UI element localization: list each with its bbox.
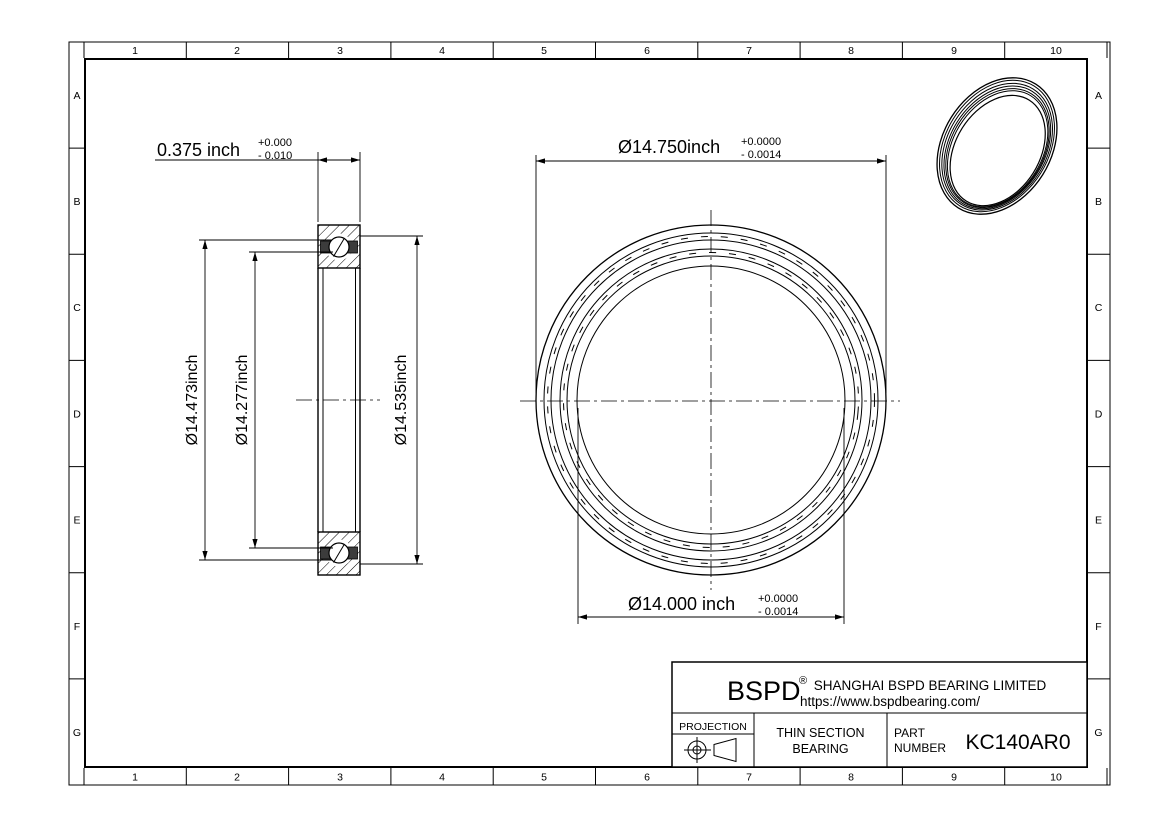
- row-label: F: [74, 621, 80, 633]
- product-name-line1: THIN SECTION: [776, 726, 864, 740]
- row-label: C: [73, 302, 81, 314]
- arrowhead-top: [202, 240, 207, 249]
- dim-value: Ø14.535inch: [393, 355, 410, 446]
- row-label: B: [73, 196, 80, 208]
- dim-tol-plus: +0.0000: [741, 136, 781, 148]
- company-name: SHANGHAI BSPD BEARING LIMITED: [814, 678, 1047, 693]
- row-label: F: [1095, 621, 1101, 633]
- col-label: 1: [132, 45, 138, 57]
- row-labels-left: A B C D E F G: [73, 90, 81, 739]
- row-label: E: [1095, 515, 1102, 527]
- front-view: [520, 210, 900, 590]
- col-label: 5: [541, 772, 547, 784]
- col-label: 4: [439, 45, 445, 57]
- part-number-label-line1: PART: [894, 726, 926, 740]
- col-label: 3: [337, 45, 343, 57]
- dim-value: 0.375 inch: [157, 140, 240, 160]
- part-number-label-line2: NUMBER: [894, 741, 946, 755]
- arrowhead-right: [877, 158, 886, 163]
- product-name-line2: BEARING: [792, 742, 848, 756]
- row-label: G: [1094, 727, 1102, 739]
- row-label: B: [1095, 196, 1102, 208]
- dim-tol-minus: - 0.010: [258, 150, 292, 162]
- col-label: 10: [1050, 45, 1062, 57]
- company-logo: BSPD: [727, 676, 801, 706]
- col-label: 1: [132, 772, 138, 784]
- col-label: 9: [951, 772, 957, 784]
- row-label: C: [1095, 302, 1103, 314]
- col-label: 3: [337, 772, 343, 784]
- extension-lines: [249, 252, 333, 548]
- arrowhead-top: [252, 252, 257, 261]
- section-view: [296, 225, 380, 575]
- column-labels-top: 1 2 3 4 5 6 7 8 9 10: [132, 45, 1062, 57]
- extension-lines: [360, 236, 423, 564]
- extension-lines: [318, 152, 360, 222]
- col-label: 7: [746, 45, 752, 57]
- isometric-ring-view: [913, 55, 1082, 236]
- row-labels-right: A B C D E F G: [1094, 90, 1102, 739]
- arrowhead-right: [835, 614, 844, 619]
- col-label: 4: [439, 772, 445, 784]
- col-label: 7: [746, 772, 752, 784]
- row-label: E: [73, 515, 80, 527]
- part-number-value: KC140AR0: [965, 731, 1070, 754]
- dim-value: Ø14.750inch: [618, 137, 720, 157]
- col-label: 2: [234, 45, 240, 57]
- arrowhead-bottom: [202, 551, 207, 560]
- row-label: D: [1095, 409, 1103, 421]
- col-label: 5: [541, 45, 547, 57]
- col-label: 6: [644, 772, 650, 784]
- col-label: 8: [848, 772, 854, 784]
- dim-value: Ø14.473inch: [184, 355, 201, 446]
- col-label: 8: [848, 45, 854, 57]
- arrowhead-right: [351, 157, 360, 162]
- drawing-canvas: 1 2 3 4 5 6 7 8 9 10 1 2 3 4 5 6 7 8 9 1…: [0, 0, 1170, 827]
- col-label: 2: [234, 772, 240, 784]
- arrowhead-left: [578, 614, 587, 619]
- row-dividers: [69, 148, 1110, 679]
- dim-value: Ø14.277inch: [234, 355, 251, 446]
- dim-tol-minus: - 0.0014: [758, 606, 798, 618]
- row-label: D: [73, 409, 81, 421]
- registered-mark: ®: [799, 675, 807, 687]
- column-labels-bottom: 1 2 3 4 5 6 7 8 9 10: [132, 772, 1062, 784]
- arrowhead-left: [536, 158, 545, 163]
- row-label: A: [1095, 90, 1102, 102]
- arrowhead-left: [318, 157, 327, 162]
- arrowhead-top: [414, 236, 419, 245]
- arrowhead-bottom: [414, 555, 419, 564]
- dim-tol-plus: +0.000: [258, 137, 292, 149]
- col-label: 9: [951, 45, 957, 57]
- dim-section-width: 0.375 inch +0.000 - 0.010: [155, 137, 360, 222]
- arrowhead-bottom: [252, 539, 257, 548]
- row-label: A: [73, 90, 80, 102]
- row-label: G: [73, 727, 81, 739]
- dim-tol-minus: - 0.0014: [741, 149, 781, 161]
- projection-label: PROJECTION: [679, 721, 747, 733]
- col-label: 6: [644, 45, 650, 57]
- col-label: 10: [1050, 772, 1062, 784]
- title-block: BSPD ® SHANGHAI BSPD BEARING LIMITED htt…: [672, 662, 1087, 767]
- company-website: https://www.bspdbearing.com/: [800, 694, 980, 709]
- dim-tol-plus: +0.0000: [758, 593, 798, 605]
- dim-value: Ø14.000 inch: [628, 594, 735, 614]
- engineering-drawing-sheet: 1 2 3 4 5 6 7 8 9 10 1 2 3 4 5 6 7 8 9 1…: [0, 0, 1170, 827]
- dim-right-diameter: Ø14.535inch: [360, 236, 423, 564]
